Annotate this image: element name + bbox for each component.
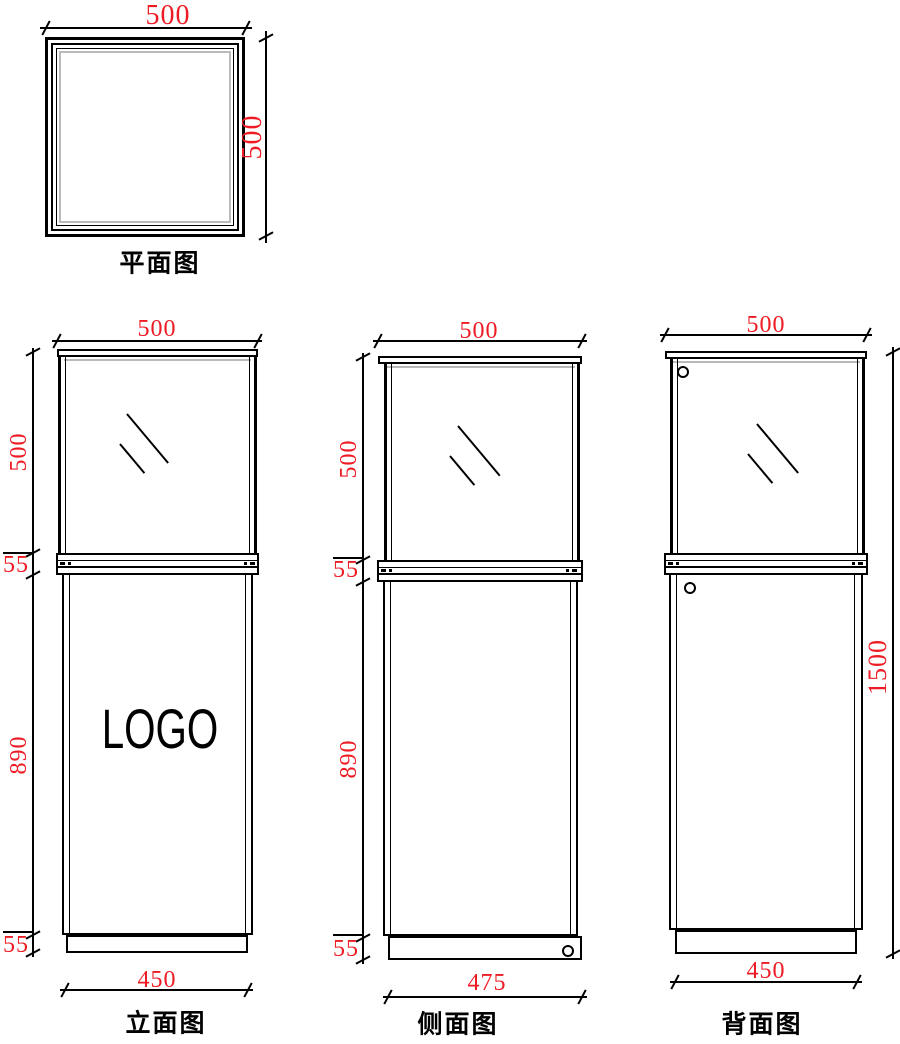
shelf-end-detail [572,569,577,572]
upper-door-lock-hole [677,366,689,378]
shelf-end-detail [852,562,855,565]
dimension-line [383,996,587,998]
glass-post-right-inner [249,357,250,553]
dimension-line [52,340,262,342]
cabinet-top-cap [378,356,582,364]
glass-symbol-long [756,423,799,473]
shelf-end-detail [244,562,247,565]
dimension-line [892,347,894,959]
side-base-height-dimension: 55 [333,937,359,961]
glass-post-right-inner [857,359,858,553]
shelf-end-detail [60,562,65,565]
body-post-left-inner [69,575,70,935]
shelf-end-detail [68,562,71,565]
body-post-right-inner [854,575,855,930]
dimension-line [670,981,862,983]
plan-width-dimension: 500 [146,2,191,30]
side-glass-height-dimension: 500 [337,440,361,479]
dimension-line [40,27,252,29]
base-hole [562,945,574,957]
plan-depth-dimension: 500 [239,115,267,160]
glass-top-edge [672,361,860,363]
body-post-right-inner [570,582,571,936]
cabinet-top-cap [665,351,867,359]
shelf-end-detail [858,562,863,565]
lower-door-lock-hole [684,582,696,594]
front-shelf-height-dimension: 55 [3,553,29,577]
dimension-line [60,989,253,991]
side-view-title: 侧面图 [417,1013,498,1038]
glass-post-right [577,364,580,560]
body-post-left-inner [390,582,391,936]
shelf-end-detail [668,562,673,565]
body-post-left [62,575,64,935]
base-plinth [388,936,582,960]
glass-symbol-short [119,443,145,473]
glass-symbol-long [126,413,169,463]
logo-text: LOGO [102,701,219,757]
back-view-title: 背面图 [721,1013,802,1038]
shelf-end-detail [389,569,392,572]
back-total-height-dimension: 1500 [865,639,891,695]
front-glass-height-dimension: 500 [7,433,31,472]
shelf-band-line [58,566,257,568]
back-base-width-dimension: 450 [747,959,786,983]
glass-post-left-inner [391,364,392,560]
shelf-end-detail [381,569,386,572]
front-body-height-dimension: 890 [7,736,31,775]
body-post-left [669,575,671,930]
glass-post-right [254,357,257,553]
glass-post-left [384,364,387,560]
shelf-band [664,553,868,575]
glass-post-left-inner [677,359,678,553]
base-plinth [675,930,857,954]
shelf-band-line [379,573,581,575]
shelf-end-detail [566,569,569,572]
shelf-band-line [666,566,866,568]
front-base-height-dimension: 55 [3,933,29,957]
countertop-glass-edge [59,51,231,223]
shelf-end-detail [676,562,679,565]
front-view-title: 立面图 [125,1012,206,1037]
glass-symbol-long [457,425,500,476]
dimension-line [32,348,34,957]
body-post-left-inner [676,575,677,930]
shelf-band [377,560,583,582]
shelf-band-line [666,560,866,561]
plan-view-title: 平面图 [119,252,200,277]
base-plinth [66,935,248,953]
side-body-height-dimension: 890 [337,740,361,779]
glass-post-right [862,359,865,553]
glass-top-edge [64,359,251,361]
body-post-left [383,582,385,936]
shelf-band-line [379,567,581,568]
front-top-width-dimension: 500 [138,317,177,341]
body-post-right [576,582,578,936]
dimension-line [373,340,587,342]
glass-post-left [58,357,61,553]
dimension-line [660,334,872,336]
glass-symbol-short [449,455,475,485]
side-base-width-dimension: 475 [468,971,507,995]
drawing-canvas: 500 500 平面图 500 [0,0,900,1044]
glass-top-edge [385,366,575,368]
cabinet-top-cap [57,349,258,357]
glass-post-right-inner [572,364,573,560]
shelf-band [56,553,259,575]
body-post-right [861,575,863,930]
body-post-right [251,575,253,935]
side-shelf-height-dimension: 55 [333,558,359,582]
glass-symbol-short [747,453,773,483]
glass-post-left-inner [65,357,66,553]
dimension-line [362,353,364,964]
glass-post-left [670,359,673,553]
shelf-end-detail [250,562,255,565]
shelf-band-line [58,560,257,561]
body-post-right-inner [245,575,246,935]
